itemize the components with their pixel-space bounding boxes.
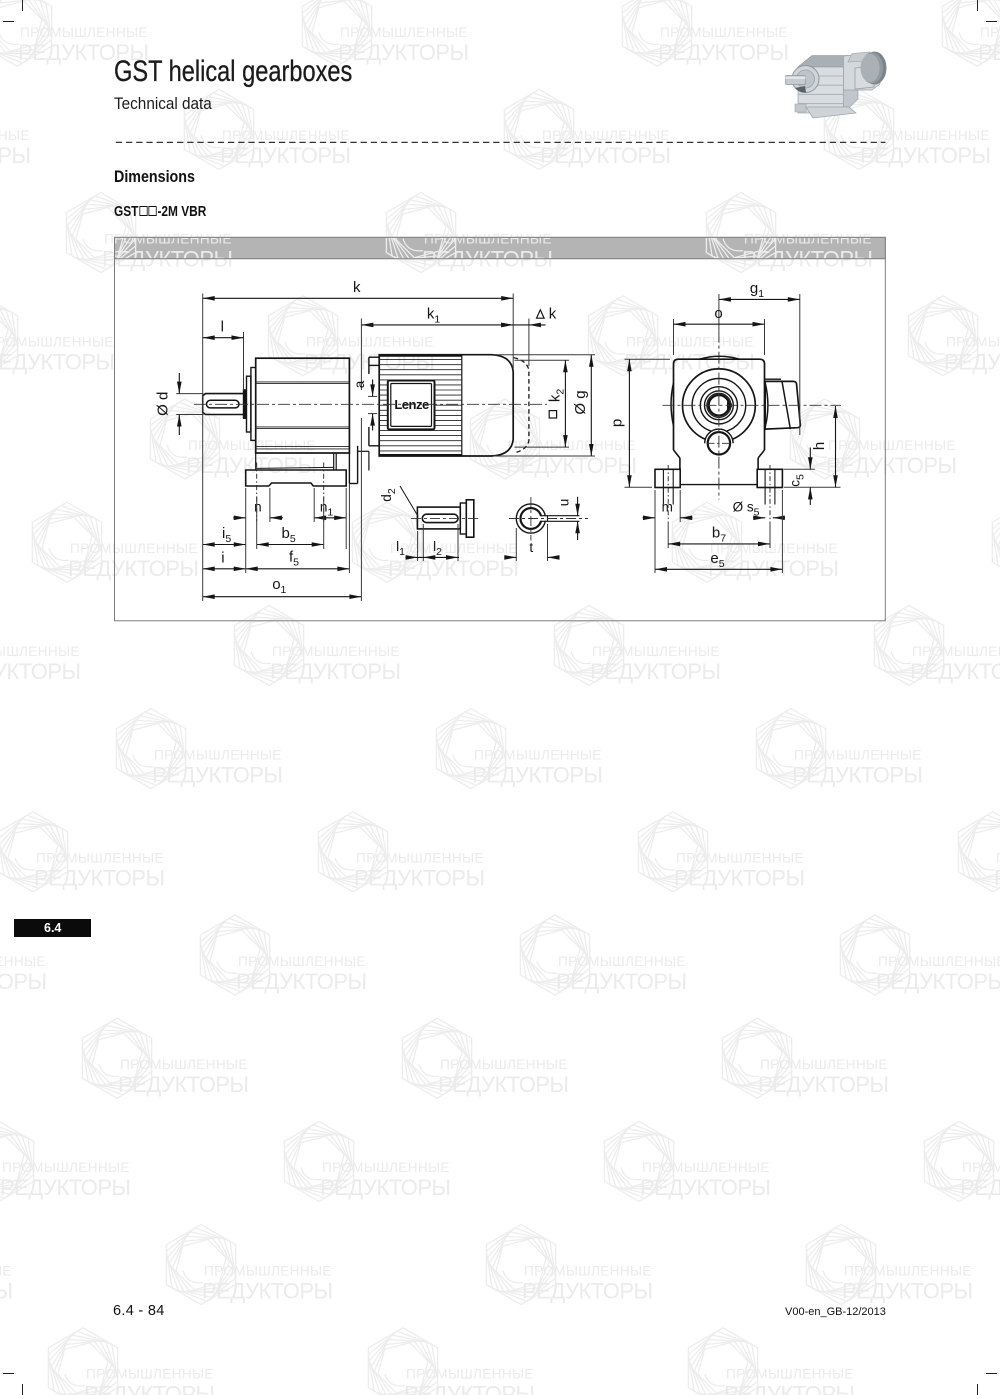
svg-text:c5: c5 [788,474,807,487]
svg-text:g1: g1 [750,280,764,300]
svg-text:a: a [352,380,367,388]
svg-text:e5: e5 [710,550,724,570]
svg-text:u: u [557,499,572,507]
svg-text:f5: f5 [289,548,299,568]
svg-text:h: h [811,442,828,450]
svg-text:d2: d2 [379,488,398,502]
svg-text:l2: l2 [433,539,442,558]
svg-text:l: l [221,318,224,335]
svg-text:t: t [529,540,533,555]
svg-text:b5: b5 [282,525,296,545]
svg-text:i5: i5 [222,525,231,545]
svg-text:k: k [549,305,557,322]
svg-text:l1: l1 [396,539,405,558]
svg-text:n1: n1 [320,499,334,518]
svg-text:o1: o1 [272,576,286,596]
svg-text:m: m [662,500,673,515]
svg-text:i: i [221,549,224,566]
svg-text:Ø s5: Ø s5 [733,500,760,519]
svg-text:k1: k1 [427,306,441,326]
svg-text:p: p [609,419,626,427]
svg-text:k: k [353,279,361,296]
svg-text:n: n [254,499,262,514]
svg-text:o: o [714,305,722,322]
svg-text:Ø g: Ø g [572,390,589,414]
svg-text:Ø d: Ø d [155,392,172,416]
svg-text:k2: k2 [547,389,567,403]
svg-text:b7: b7 [712,524,726,544]
